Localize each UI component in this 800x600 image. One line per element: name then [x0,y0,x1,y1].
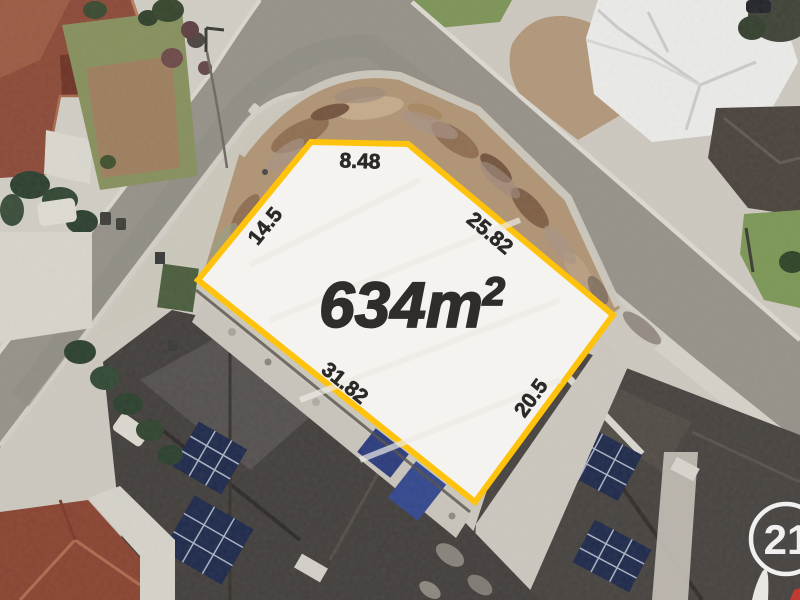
svg-text:634m2: 634m2 [319,269,505,341]
svg-text:8.48: 8.48 [339,149,381,173]
svg-text:21: 21 [764,516,800,563]
